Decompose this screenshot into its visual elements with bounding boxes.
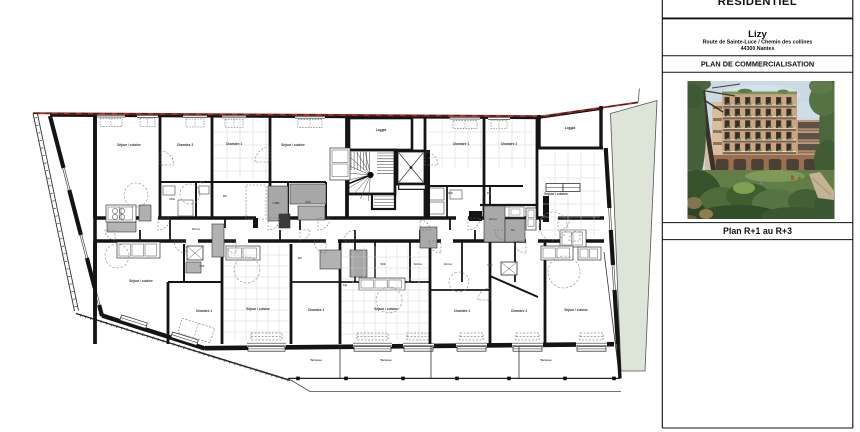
svg-text:SDE: SDE (380, 262, 386, 266)
svg-text:Chambre 1: Chambre 1 (454, 309, 471, 313)
svg-text:Séjour / cuisine: Séjour / cuisine (246, 307, 270, 311)
svg-text:Séjour / cuisine: Séjour / cuisine (544, 192, 568, 196)
svg-text:Route de Sainte-Luce / Chemin: Route de Sainte-Luce / Chemin des collin… (703, 39, 813, 45)
svg-text:44300 Nantes: 44300 Nantes (741, 46, 775, 52)
svg-text:Chambre 1: Chambre 1 (226, 142, 243, 146)
svg-text:Chambre 1: Chambre 1 (196, 309, 213, 313)
svg-text:Dgt: Dgt (487, 191, 491, 195)
svg-text:Séjour / cuisine: Séjour / cuisine (117, 143, 141, 147)
svg-text:Entrée: Entrée (192, 227, 201, 231)
svg-text:Chambre 2: Chambre 2 (177, 143, 194, 147)
svg-text:Séjour / cuisine: Séjour / cuisine (374, 307, 398, 311)
svg-text:Séjour / cuisine: Séjour / cuisine (281, 143, 305, 147)
svg-text:Entrée: Entrée (414, 262, 423, 266)
svg-text:Loggia: Loggia (376, 128, 387, 132)
svg-text:SDB: SDB (305, 200, 311, 204)
svg-text:RESIDENTIEL: RESIDENTIEL (718, 0, 797, 8)
svg-text:SDB: SDB (447, 191, 453, 195)
svg-text:SDE: SDE (199, 264, 205, 268)
svg-text:WC: WC (511, 228, 515, 232)
svg-text:Chambre 2: Chambre 2 (501, 142, 518, 146)
svg-text:Dgt: Dgt (343, 283, 347, 287)
svg-text:Séjour / cuisine: Séjour / cuisine (129, 279, 153, 283)
svg-text:WC: WC (223, 194, 227, 198)
svg-text:Terrasse: Terrasse (540, 358, 552, 362)
svg-text:Loggia: Loggia (565, 126, 576, 130)
svg-text:Gaine: Gaine (272, 201, 280, 205)
svg-text:PLAN DE COMMERCIALISATION: PLAN DE COMMERCIALISATION (701, 60, 814, 69)
svg-text:Chambre 1: Chambre 1 (453, 142, 470, 146)
svg-text:Terrasse: Terrasse (310, 358, 322, 362)
svg-text:SDB: SDB (169, 197, 175, 201)
svg-text:Plan R+1 au R+3: Plan R+1 au R+3 (723, 226, 792, 236)
svg-text:Dgt: Dgt (200, 180, 204, 184)
svg-text:SDE: SDE (487, 263, 493, 267)
svg-text:WC: WC (298, 256, 302, 260)
svg-text:Chambre 1: Chambre 1 (308, 308, 325, 312)
svg-text:Terrasse: Terrasse (380, 358, 392, 362)
svg-text:Entrée: Entrée (444, 262, 453, 266)
svg-text:Séjour / cuisine: Séjour / cuisine (564, 308, 588, 312)
svg-text:Entrée: Entrée (489, 217, 498, 221)
svg-text:Chambre 2: Chambre 2 (511, 309, 528, 313)
